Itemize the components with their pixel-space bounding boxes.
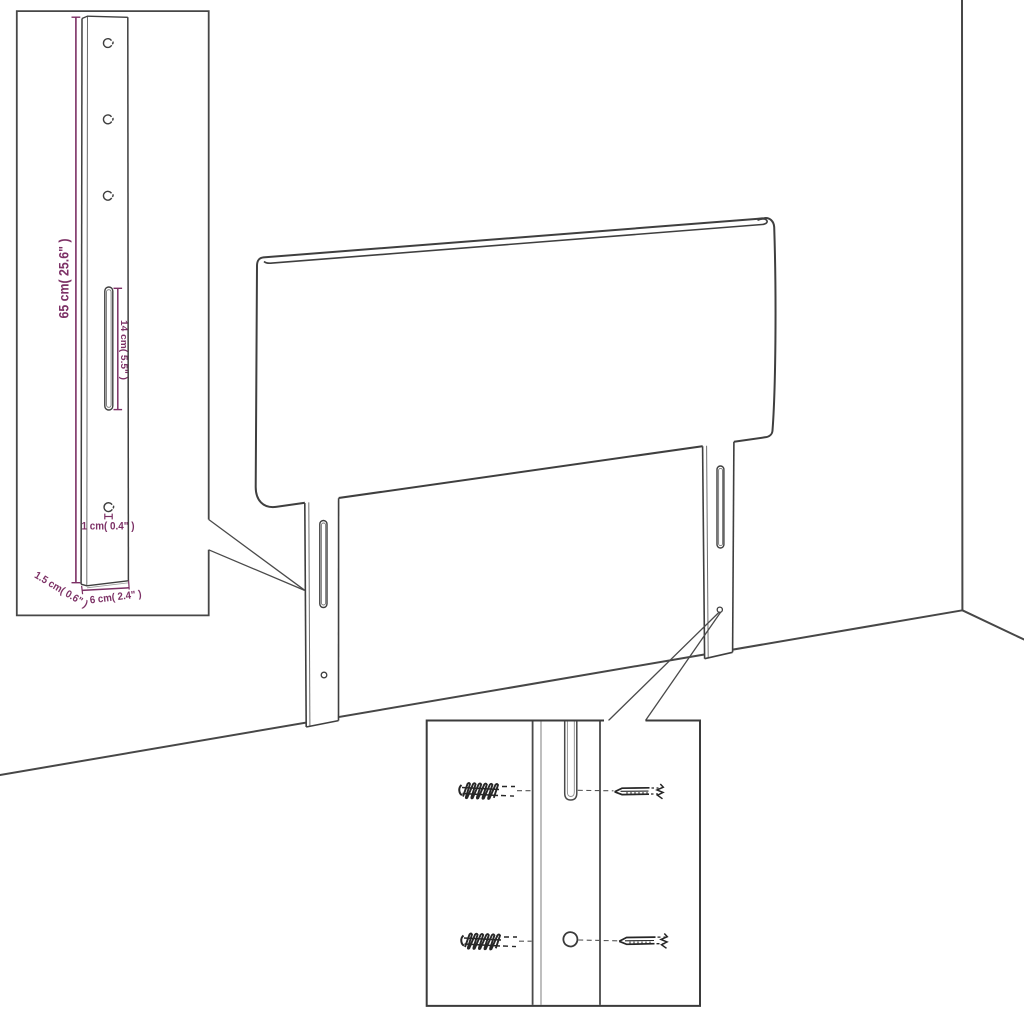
svg-text:65 cm( 25.6" ): 65 cm( 25.6" ) bbox=[56, 239, 71, 319]
svg-text:14 cm( 5.5" ): 14 cm( 5.5" ) bbox=[119, 320, 129, 380]
svg-text:1 cm( 0.4" ): 1 cm( 0.4" ) bbox=[82, 521, 135, 533]
